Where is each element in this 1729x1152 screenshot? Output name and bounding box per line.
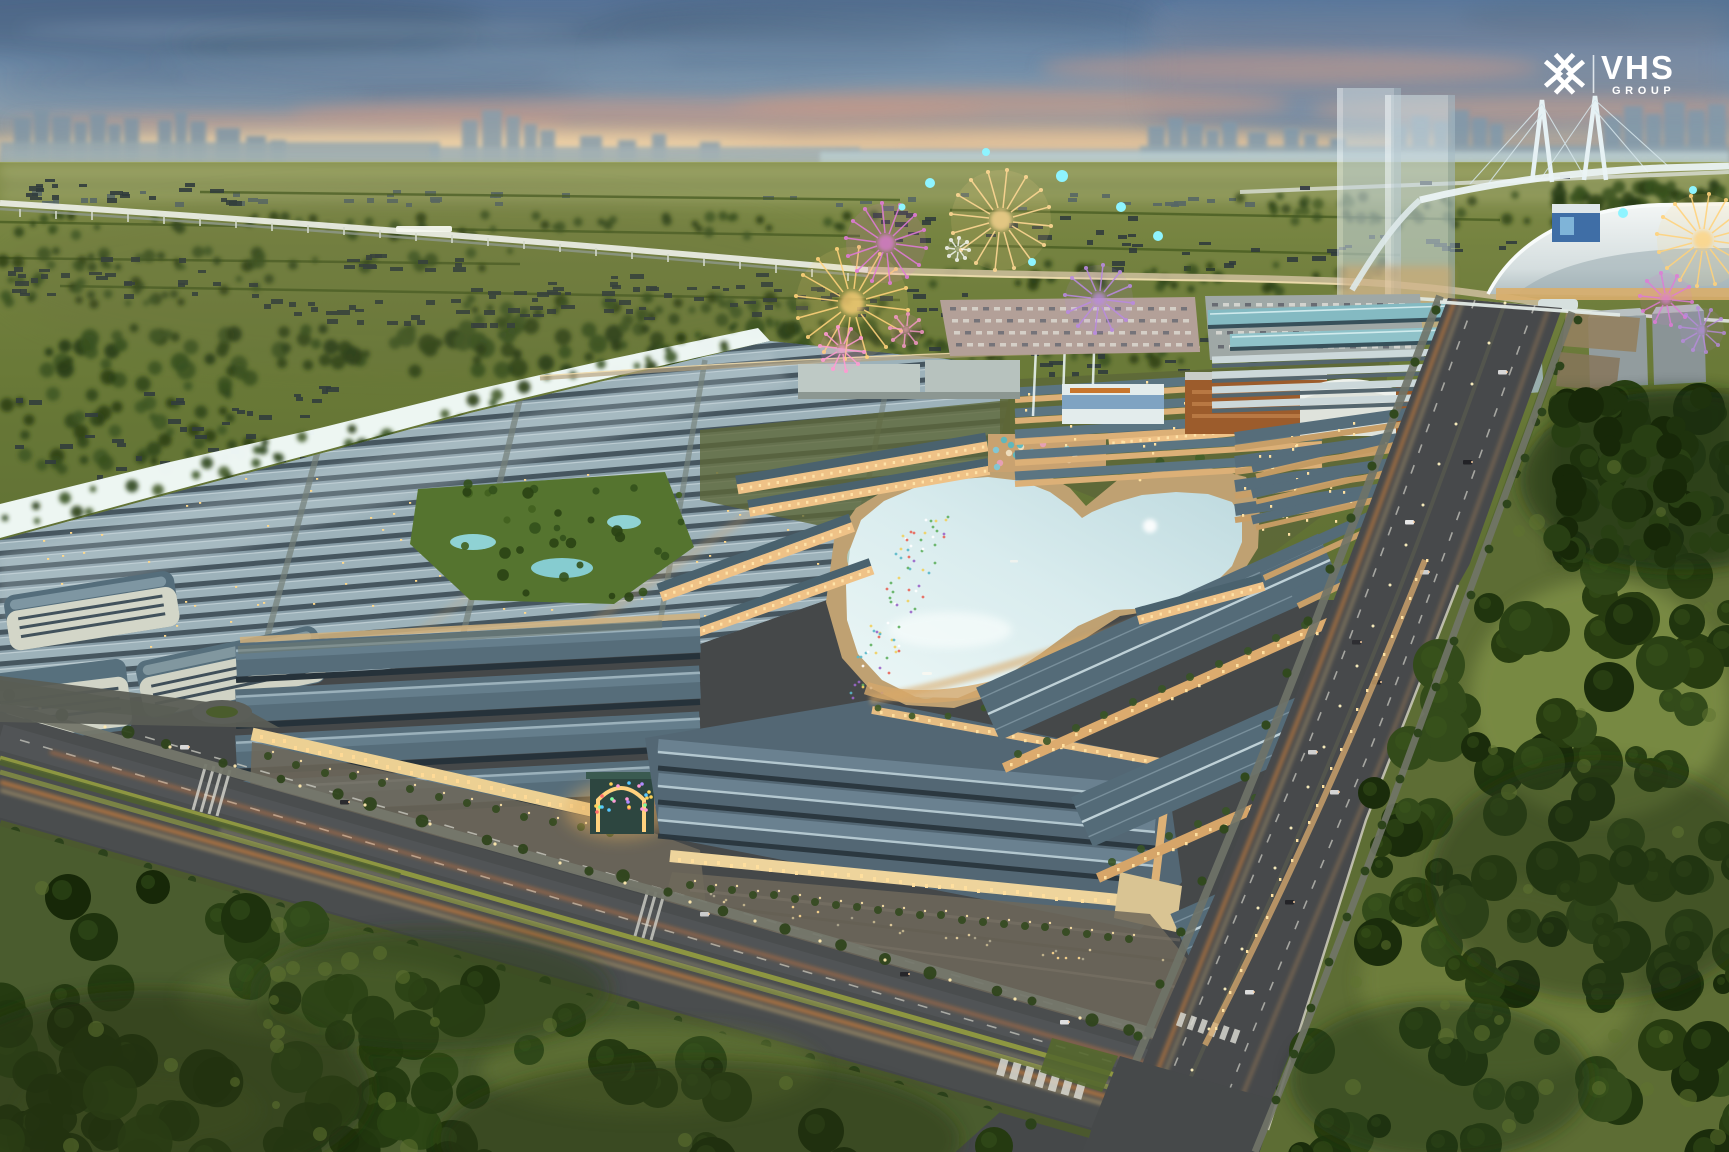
svg-text:GROUP: GROUP bbox=[1612, 85, 1675, 97]
svg-text:VHS: VHS bbox=[1601, 49, 1675, 86]
